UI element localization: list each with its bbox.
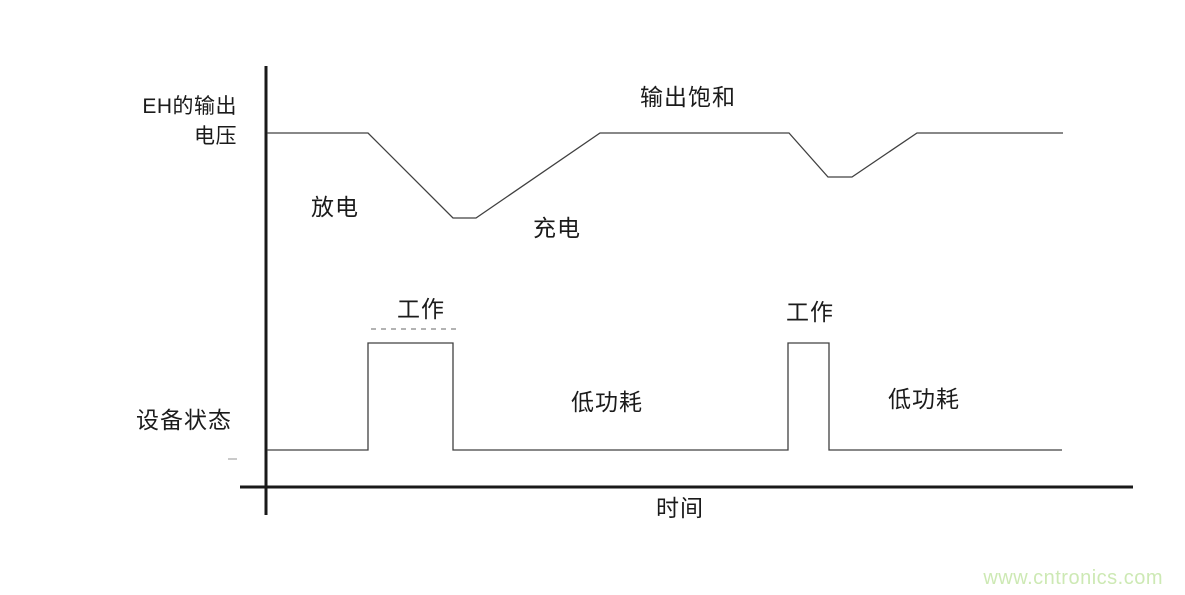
label-discharge: 放电 [311, 194, 359, 222]
watermark-cntronics: www.cntronics.com [983, 567, 1163, 590]
voltage-waveform [267, 133, 1063, 218]
y-axis-label-device-state: 设备状态 [136, 407, 232, 435]
label-output-saturation: 输出饱和 [640, 84, 736, 112]
label-working-2: 工作 [786, 299, 834, 327]
diagram-canvas [0, 0, 1185, 595]
x-axis-label-time: 时间 [656, 495, 704, 523]
label-working-1: 工作 [397, 296, 445, 324]
label-charge: 充电 [533, 215, 581, 243]
timing-diagram: EH的输出 电压 输出饱和 放电 充电 工作 工作 低功耗 低功耗 设备状态 时… [0, 0, 1185, 595]
label-low-power-2: 低功耗 [888, 386, 960, 414]
y-axis-label-eh-output-voltage: EH的输出 电压 [142, 92, 237, 153]
label-low-power-1: 低功耗 [571, 389, 643, 417]
